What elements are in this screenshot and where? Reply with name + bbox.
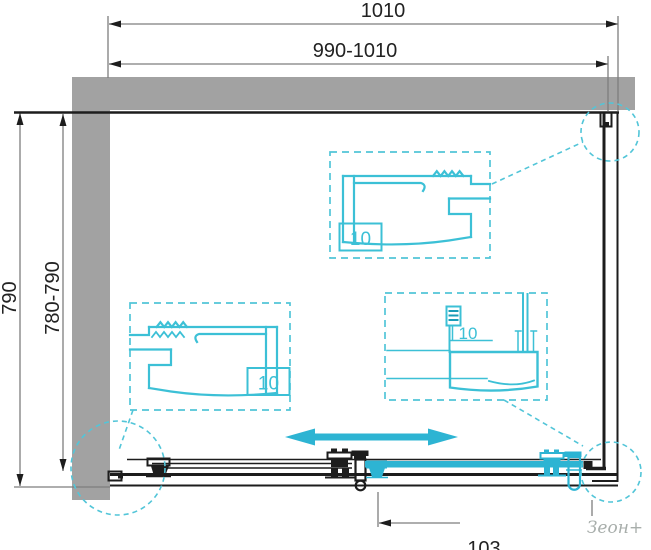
detail-box-bottom-rail-section: 10 xyxy=(385,293,547,400)
detail-label-rail: 10 xyxy=(459,324,478,343)
dimension-width-range: 990-1010 xyxy=(109,40,608,68)
height-total-label: 790 xyxy=(0,281,21,314)
dimension-width-total: 1010 xyxy=(109,0,618,28)
height-range-label: 780-790 xyxy=(42,261,64,334)
width-range-label: 990-1010 xyxy=(313,40,398,62)
door-panel-open xyxy=(365,450,583,490)
detail-circle-bottom-right xyxy=(581,442,641,502)
wall-profile-section-mirrored xyxy=(130,322,277,395)
detail-box-wall-profile-right: 10 xyxy=(330,152,490,258)
detail-box-wall-profile-left: 10 xyxy=(130,303,290,410)
detail-label-left: 10 xyxy=(258,374,279,395)
wall-top xyxy=(72,77,635,110)
door-panel-closed xyxy=(146,449,369,491)
slide-direction-arrow-icon xyxy=(285,429,458,446)
wall-hatch xyxy=(152,332,184,337)
width-total-label: 1010 xyxy=(361,0,406,22)
adjuster-leg-cyan xyxy=(565,452,583,490)
technical-drawing: 1010 990-1010 790 780-790 103 xyxy=(0,0,651,550)
bottom-offset-label: 103 xyxy=(467,538,500,550)
drawing-canvas: 1010 990-1010 790 780-790 103 xyxy=(0,0,651,550)
adjuster-leg-black xyxy=(352,451,369,491)
frame-right-wall-profile xyxy=(584,113,619,483)
dimension-height-total: 790 xyxy=(0,113,24,486)
watermark: Зеон+ xyxy=(587,518,643,538)
dimension-bottom-offset: 103 xyxy=(379,520,501,550)
detail-label-top: 10 xyxy=(350,229,371,250)
detail-leader-lines xyxy=(119,142,583,450)
dimension-height-range: 780-790 xyxy=(42,114,67,471)
wall-left xyxy=(72,77,110,500)
